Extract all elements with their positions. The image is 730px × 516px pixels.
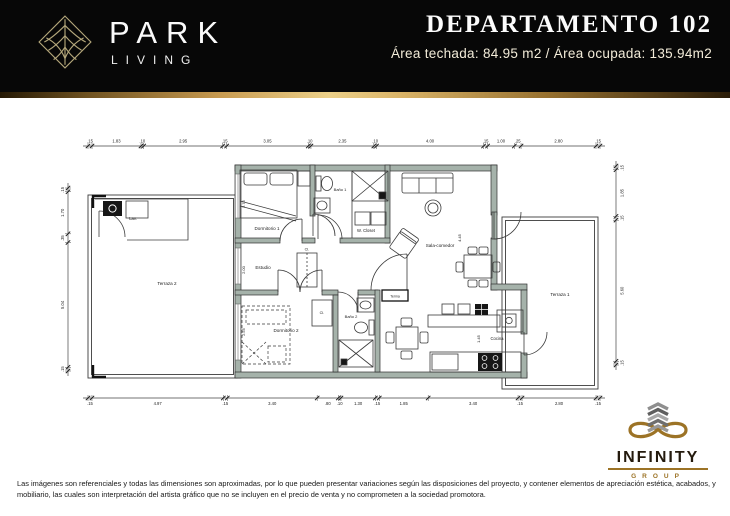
washer-icon bbox=[103, 201, 122, 216]
terraza-2-outline bbox=[88, 195, 237, 378]
door-arcs bbox=[278, 212, 547, 355]
dimension-line-right: .151.85.155.60.15 bbox=[613, 161, 625, 370]
dim-label: .15 bbox=[595, 139, 601, 144]
dim-label: 1.70 bbox=[60, 208, 65, 217]
bathroom-2-fixtures bbox=[339, 298, 374, 367]
corner-marker bbox=[93, 196, 106, 377]
room-label-terraza-1: Terraza 1 bbox=[550, 292, 570, 297]
dim-label: .15 bbox=[374, 401, 380, 406]
dim-label: 3.40 bbox=[268, 401, 277, 406]
brand-subname: LIVING bbox=[109, 53, 227, 67]
bed-dormitorio-2 bbox=[242, 306, 290, 364]
unit-info: DEPARTAMENTO 102 Área techada: 84.95 m2 … bbox=[391, 11, 712, 61]
dim-label: 2.35 bbox=[338, 139, 347, 144]
dim-label: .15 bbox=[517, 401, 523, 406]
header: PARK LIVING DEPARTAMENTO 102 Área techad… bbox=[0, 0, 730, 92]
bed-dormitorio-1 bbox=[240, 170, 310, 221]
room-label-dormitorio-2: Dormitorio 2 bbox=[273, 328, 298, 333]
dim-label: .25 bbox=[515, 139, 521, 144]
terraza-1-outline bbox=[502, 217, 598, 389]
unit-areas: Área techada: 84.95 m2 / Área ocupada: 1… bbox=[391, 46, 712, 61]
dim-label: .15 bbox=[60, 186, 65, 192]
dim-label: 5.04 bbox=[60, 300, 65, 309]
dim-label: .15 bbox=[222, 139, 228, 144]
infinity-name: INFINITY bbox=[602, 450, 714, 466]
room-label-cl-dormitorio-2: Cl. bbox=[320, 311, 325, 315]
dim-label: .15 bbox=[60, 366, 65, 372]
dim-label: 1.85 bbox=[400, 401, 409, 406]
cooktop-icon bbox=[475, 304, 488, 315]
park-living-logo-icon bbox=[36, 13, 94, 71]
dim-label: 3.40 bbox=[469, 401, 478, 406]
estudio-closet bbox=[297, 253, 317, 287]
interior-dim-label: 2.75 bbox=[241, 199, 246, 208]
bathroom-1-fixtures bbox=[314, 171, 352, 238]
breakfast-table-icon bbox=[386, 318, 428, 359]
dim-label: .10 bbox=[337, 401, 343, 406]
dim-label: 4.00 bbox=[426, 139, 435, 144]
legal-disclaimer: Las imágenes son referenciales y todas l… bbox=[17, 478, 717, 501]
brand-name: PARK bbox=[109, 17, 227, 48]
room-label-bano-2: Baño 2 bbox=[345, 314, 358, 319]
room-label-terma: Terma bbox=[390, 295, 400, 299]
dim-label: 4.97 bbox=[154, 401, 163, 406]
dim-label: .15 bbox=[87, 401, 93, 406]
dim-label: .15 bbox=[483, 139, 489, 144]
gold-divider bbox=[0, 92, 730, 98]
dim-label: .15 bbox=[620, 360, 625, 366]
dim-label: .15 bbox=[222, 401, 228, 406]
dimension-line-left: .151.70.355.04.15 bbox=[60, 183, 71, 376]
brand-text: PARK LIVING bbox=[109, 17, 227, 67]
dim-label: .35 bbox=[60, 235, 65, 241]
room-label-sala-comedor: Sala-comedor bbox=[426, 243, 455, 248]
wcloset-cabinets bbox=[355, 212, 386, 225]
dimension-line-top: .151.83.102.95.153.05.102.35.104.00.151.… bbox=[83, 139, 605, 150]
room-label-terraza-2: Terraza 2 bbox=[157, 281, 177, 286]
dim-label: 1.83 bbox=[112, 139, 121, 144]
infinity-rule bbox=[608, 468, 708, 470]
room-label-lav: Lav. bbox=[129, 216, 137, 221]
room-label-cocina: Cocina bbox=[490, 336, 504, 341]
infinity-group-logo: INFINITY GROUP bbox=[602, 399, 714, 480]
coffee-table-icon bbox=[425, 200, 441, 216]
dim-label: .15 bbox=[620, 164, 625, 170]
shower-icon bbox=[352, 171, 388, 201]
dimension-line-bottom: .154.97.153.40.80.101.30.151.853.40.152.… bbox=[83, 395, 605, 406]
room-label-bano-1: Baño 1 bbox=[334, 187, 347, 192]
dim-label: 3.05 bbox=[263, 139, 272, 144]
dim-label: 2.80 bbox=[555, 401, 564, 406]
park-living-brand: PARK LIVING bbox=[36, 13, 227, 71]
room-label-estudio: Estudio bbox=[255, 265, 271, 270]
dim-label: .10 bbox=[139, 139, 145, 144]
flyer-page: PARK LIVING DEPARTAMENTO 102 Área techad… bbox=[0, 0, 730, 516]
dim-label: .10 bbox=[372, 139, 378, 144]
unit-title: DEPARTAMENTO 102 bbox=[391, 11, 712, 39]
dim-label: 5.60 bbox=[620, 286, 625, 295]
room-label-wcloset: W. Closet bbox=[357, 228, 376, 233]
interior-dim-label: 2.55 bbox=[241, 327, 246, 336]
dim-label: .80 bbox=[325, 401, 331, 406]
stove-icon bbox=[478, 353, 502, 371]
dim-label: 2.95 bbox=[179, 139, 188, 144]
dim-label: 1.85 bbox=[620, 188, 625, 197]
dim-label: .10 bbox=[307, 139, 313, 144]
dim-label: 1.30 bbox=[354, 401, 363, 406]
interior-dim-label: 2.00 bbox=[241, 265, 246, 274]
dim-label: 1.00 bbox=[497, 139, 506, 144]
infinity-building-icon bbox=[620, 399, 696, 445]
interior-dim-label: 4.45 bbox=[457, 233, 462, 242]
dim-label: .15 bbox=[595, 401, 601, 406]
dim-label: 2.80 bbox=[554, 139, 563, 144]
sofa-icon bbox=[402, 173, 453, 193]
interior-dim-label: 1.45 bbox=[476, 334, 481, 343]
room-label-cl-estudio: Cl. bbox=[305, 248, 310, 252]
room-label-dormitorio-1: Dormitorio 1 bbox=[254, 226, 279, 231]
dim-label: .15 bbox=[620, 215, 625, 221]
dim-label: .15 bbox=[87, 139, 93, 144]
